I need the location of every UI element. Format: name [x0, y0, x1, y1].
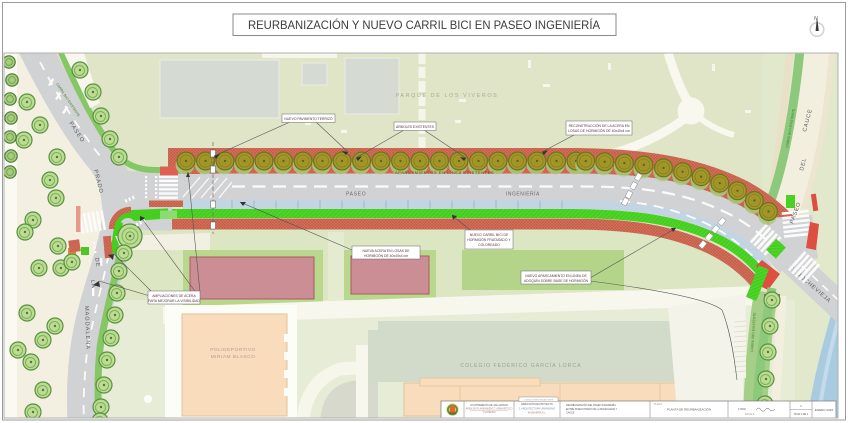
svg-text:PARQUE DE LOS VIVEROS: PARQUE DE LOS VIVEROS — [396, 93, 499, 99]
svg-text:Y VIVIENDA: Y VIVIENDA — [482, 411, 496, 414]
svg-text:HORMIGÓN DE 40x40x4 cm: HORMIGÓN DE 40x40x4 cm — [364, 253, 408, 258]
svg-text:HORMIGÓN FRATASADO Y: HORMIGÓN FRATASADO Y — [467, 237, 511, 242]
svg-text:ENTRE PASEO PRADO DE LA MAGDAL: ENTRE PASEO PRADO DE LA MAGDALENA Y — [566, 408, 618, 411]
svg-text:ESCALA: ESCALA — [745, 413, 755, 416]
svg-text:ADOQUÍN SOBRE BASE DE HORMIGÓN: ADOQUÍN SOBRE BASE DE HORMIGÓN — [524, 278, 589, 283]
svg-text:AMPLIACIONES DE ACERA: AMPLIACIONES DE ACERA — [152, 294, 196, 298]
svg-text:CONSULTORES REDACTORES: CONSULTORES REDACTORES — [524, 399, 554, 402]
svg-text:CAUCE: CAUCE — [566, 412, 575, 415]
svg-text:N: N — [814, 16, 818, 22]
svg-text:NUEVA ACERA EN LOSAS DE: NUEVA ACERA EN LOSAS DE — [362, 249, 410, 253]
svg-text:REURBANIZACIÓN Y NUEVO CARRIL: REURBANIZACIÓN Y NUEVO CARRIL BICI EN PA… — [248, 17, 601, 32]
svg-text:NUEVO CARRIL BICI DE: NUEVO CARRIL BICI DE — [470, 233, 509, 237]
svg-text:NUEVO APARCAMIENTO EN LÍNEA DE: NUEVO APARCAMIENTO EN LÍNEA DE — [525, 274, 587, 278]
svg-text:INGENIERÍA S.L.: INGENIERÍA S.L. — [528, 412, 547, 415]
svg-text:PLANO: PLANO — [654, 403, 662, 406]
svg-text:POLIDEPORTIVO: POLIDEPORTIVO — [210, 347, 256, 353]
svg-text:ENERO 2023: ENERO 2023 — [815, 408, 834, 412]
svg-text:REURBANIZACIÓN DEL PASEO INGEN: REURBANIZACIÓN DEL PASEO INGENIERÍA — [566, 404, 616, 407]
svg-text:PASEO: PASEO — [346, 192, 366, 198]
svg-text:DIRECCIÓN DE PROYECTO: DIRECCIÓN DE PROYECTO — [521, 403, 553, 406]
svg-text:COLEGIO FEDERICO GARCÍA LOR: COLEGIO FEDERICO GARCÍA LORCA — [460, 362, 581, 369]
svg-text:INGENIERÍA: INGENIERÍA — [506, 191, 540, 198]
svg-text:PARA MEJORAR LA VISIBILIDAD: PARA MEJORAR LA VISIBILIDAD — [148, 299, 200, 303]
svg-text:COLOREADO: COLOREADO — [478, 243, 500, 247]
svg-text:PLANTA DE REURBANIZACIÓN: PLANTA DE REURBANIZACIÓN — [667, 407, 711, 412]
svg-text:MIRIAM BLASCO: MIRIAM BLASCO — [211, 354, 256, 360]
svg-text:HOJA 1 DE 1: HOJA 1 DE 1 — [794, 413, 809, 416]
svg-text:NUEVO PAVIMENTO TERRIZO: NUEVO PAVIMENTO TERRIZO — [284, 117, 333, 121]
svg-text:LOSAS DE HORMIGÓN DE 40x40x4 c: LOSAS DE HORMIGÓN DE 40x40x4 cm — [568, 128, 630, 133]
svg-text:1:500: 1:500 — [738, 407, 746, 411]
svg-text:RECONSTRUCCIÓN DE LA ACERA EN: RECONSTRUCCIÓN DE LA ACERA EN — [569, 123, 630, 128]
svg-text:APARCAMIENTOS EN LÍNEA E: APARCAMIENTOS EN LÍNEA EXISTENTES — [395, 170, 494, 175]
svg-text:J. ARQUITECTURA URBANISMO: J. ARQUITECTURA URBANISMO — [519, 408, 555, 411]
svg-text:ÁRBOLES EXISTENTES: ÁRBOLES EXISTENTES — [396, 125, 435, 129]
